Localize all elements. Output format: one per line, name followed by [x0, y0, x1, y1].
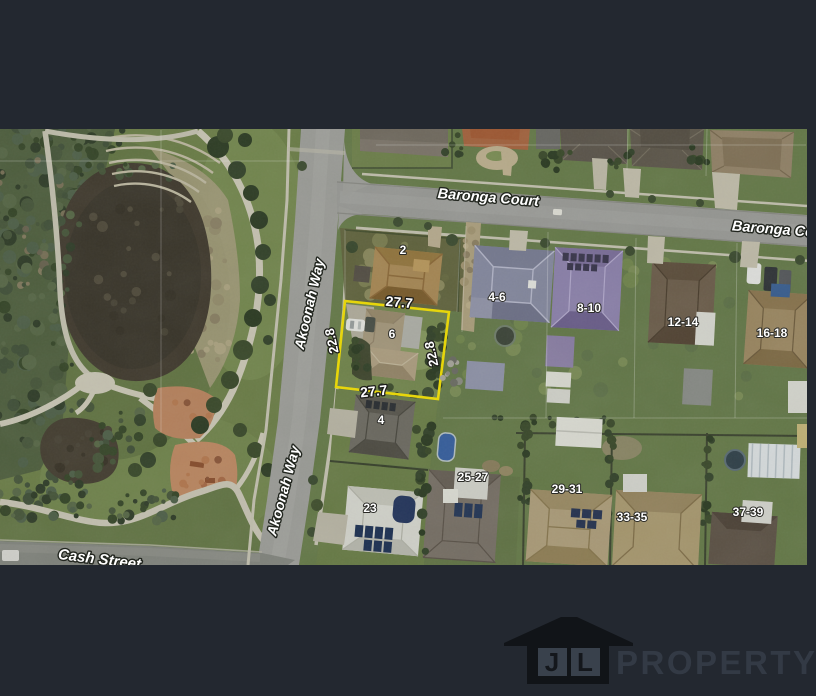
- svg-text:29-31: 29-31: [552, 482, 583, 496]
- svg-text:6: 6: [389, 327, 396, 341]
- svg-text:23: 23: [363, 501, 377, 515]
- svg-text:25-27: 25-27: [458, 470, 489, 484]
- svg-text:37-39: 37-39: [733, 505, 764, 519]
- svg-text:4-6: 4-6: [488, 290, 506, 304]
- svg-text:12-14: 12-14: [668, 315, 699, 329]
- svg-text:8-10: 8-10: [577, 301, 601, 315]
- svg-text:PROPERTY: PROPERTY: [616, 644, 816, 681]
- svg-text:16-18: 16-18: [757, 326, 788, 340]
- svg-text:2: 2: [400, 243, 407, 257]
- svg-text:27.7: 27.7: [359, 382, 388, 401]
- svg-text:33-35: 33-35: [617, 510, 648, 524]
- svg-text:L: L: [577, 647, 593, 677]
- svg-text:27.7: 27.7: [385, 293, 414, 311]
- svg-text:J: J: [545, 647, 559, 677]
- svg-text:4: 4: [378, 413, 385, 427]
